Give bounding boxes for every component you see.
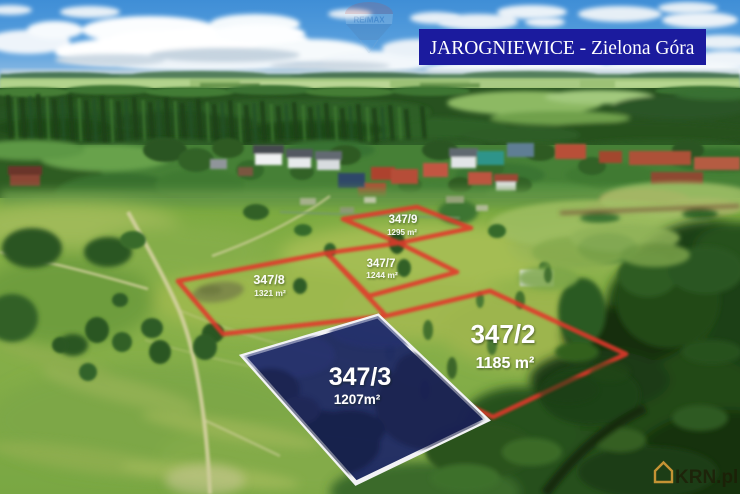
svg-text:1295 m²: 1295 m² [387, 228, 417, 237]
svg-text:347/9: 347/9 [389, 214, 418, 226]
svg-text:KRN.pl: KRN.pl [675, 467, 738, 488]
svg-text:JAROGNIEWICE - Zielona Góra: JAROGNIEWICE - Zielona Góra [430, 38, 695, 59]
svg-text:347/3: 347/3 [329, 363, 392, 391]
svg-text:1321 m²: 1321 m² [254, 288, 286, 298]
svg-text:1244 m²: 1244 m² [366, 270, 398, 280]
svg-text:347/7: 347/7 [367, 258, 396, 270]
svg-text:1207m²: 1207m² [334, 392, 381, 407]
svg-text:1185 m²: 1185 m² [476, 355, 535, 372]
svg-text:347/8: 347/8 [253, 273, 284, 287]
svg-text:RE/MAX: RE/MAX [353, 16, 385, 25]
svg-text:347/2: 347/2 [470, 319, 535, 349]
